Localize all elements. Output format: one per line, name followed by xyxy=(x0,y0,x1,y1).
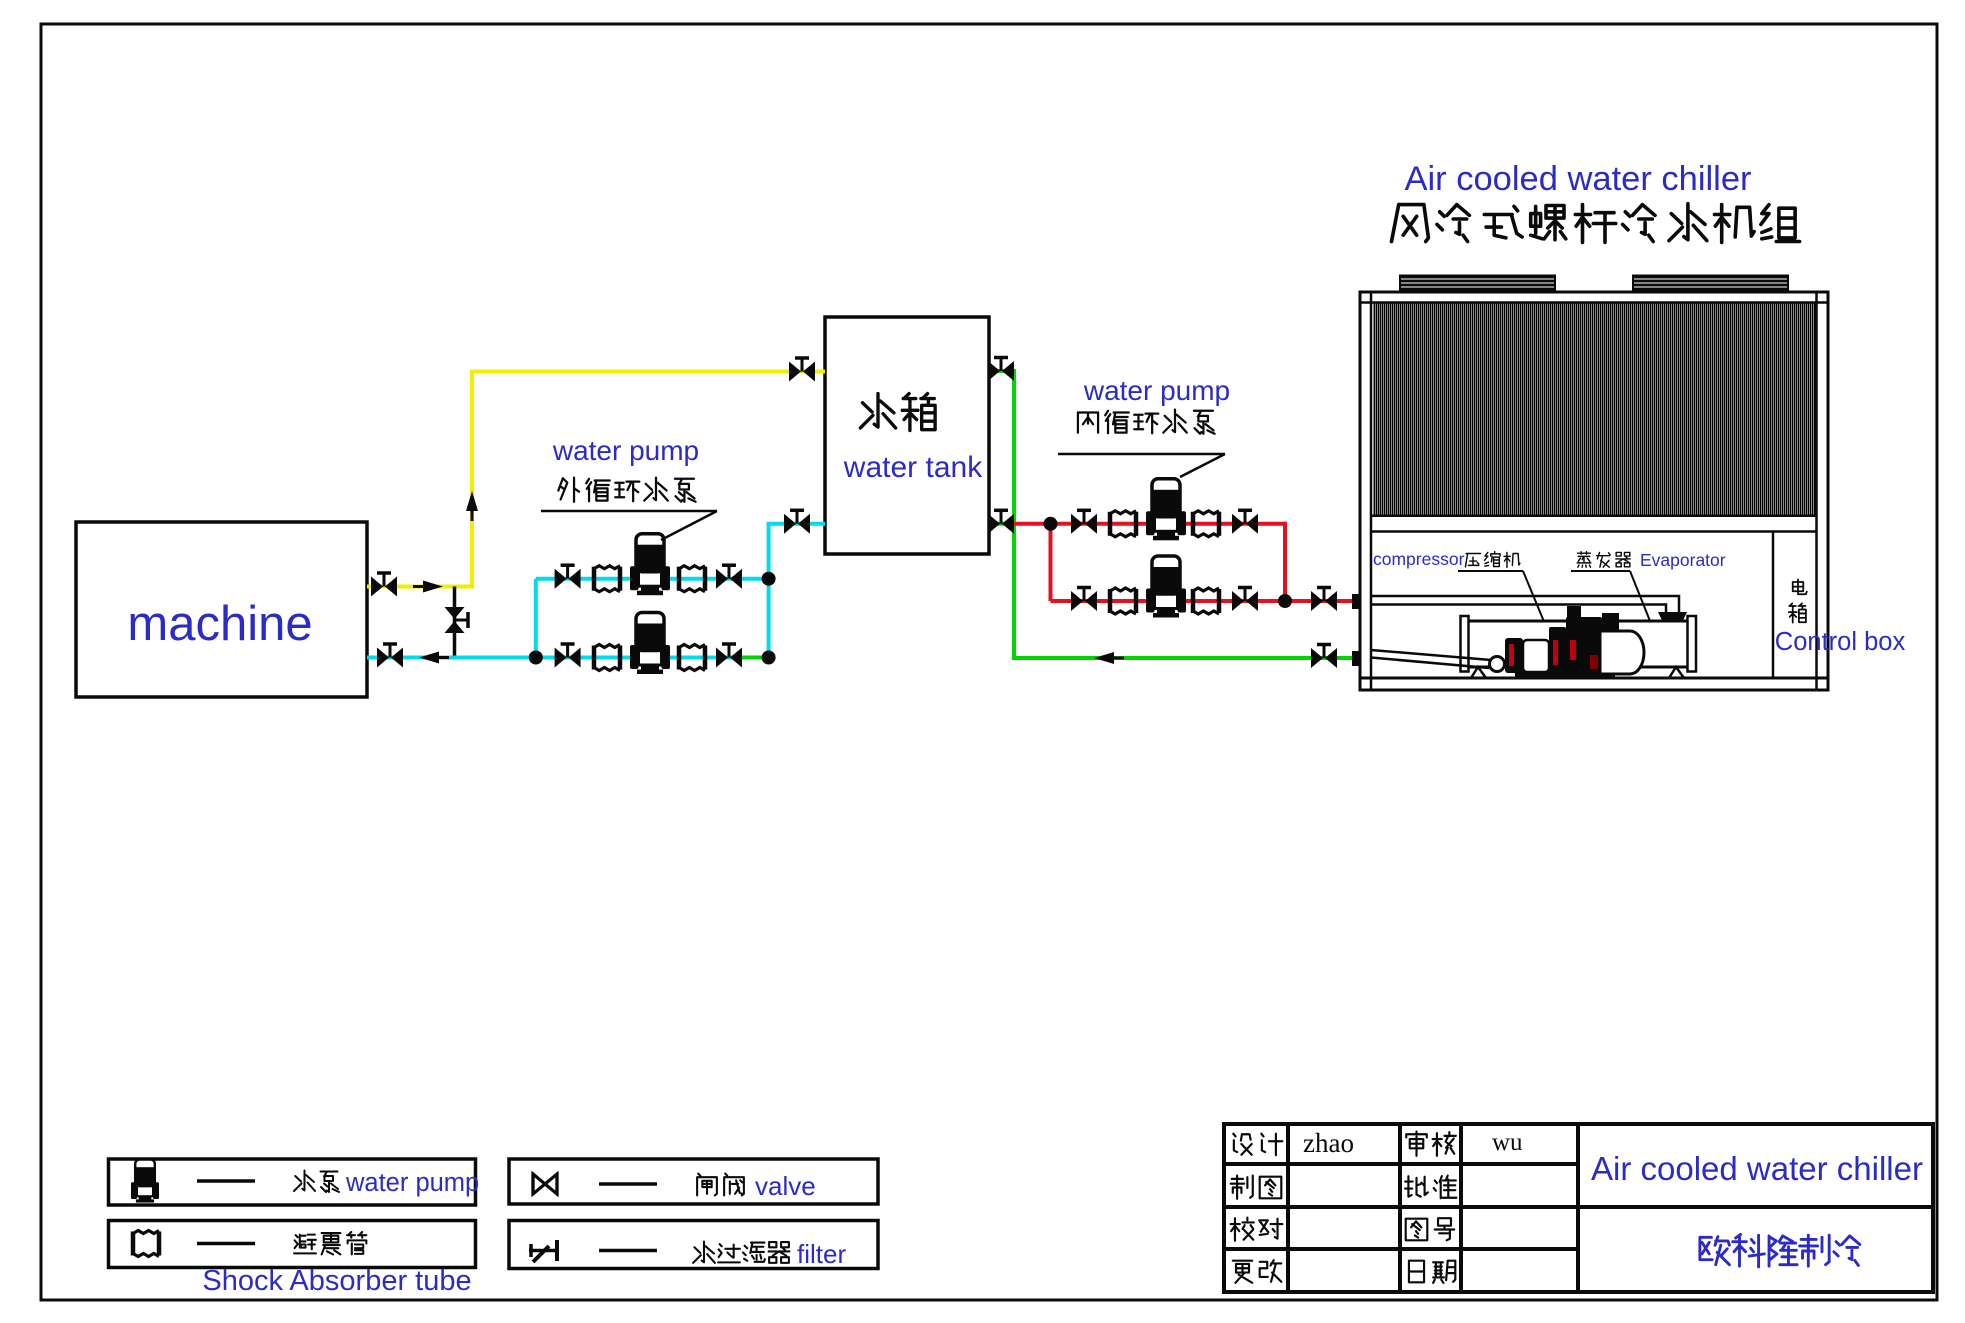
svg-text:water pump: water pump xyxy=(345,1169,479,1197)
svg-text:compressor: compressor xyxy=(1373,549,1465,569)
svg-text:water tank: water tank xyxy=(843,451,983,484)
svg-text:water pump: water pump xyxy=(1083,375,1230,406)
svg-text:valve: valve xyxy=(755,1171,816,1201)
svg-text:machine: machine xyxy=(127,597,312,651)
svg-text:wu: wu xyxy=(1492,1129,1523,1156)
svg-text:Evaporator: Evaporator xyxy=(1640,550,1726,570)
svg-text:Shock Absorber tube: Shock Absorber tube xyxy=(202,1265,471,1297)
svg-text:water pump: water pump xyxy=(552,435,699,466)
svg-text:Air cooled water chiller: Air cooled water chiller xyxy=(1591,1150,1923,1187)
svg-text:filter: filter xyxy=(797,1239,846,1269)
svg-text:Control box: Control box xyxy=(1775,628,1906,656)
svg-text:Air cooled water chiller: Air cooled water chiller xyxy=(1404,160,1751,198)
svg-text:zhao: zhao xyxy=(1303,1128,1354,1158)
